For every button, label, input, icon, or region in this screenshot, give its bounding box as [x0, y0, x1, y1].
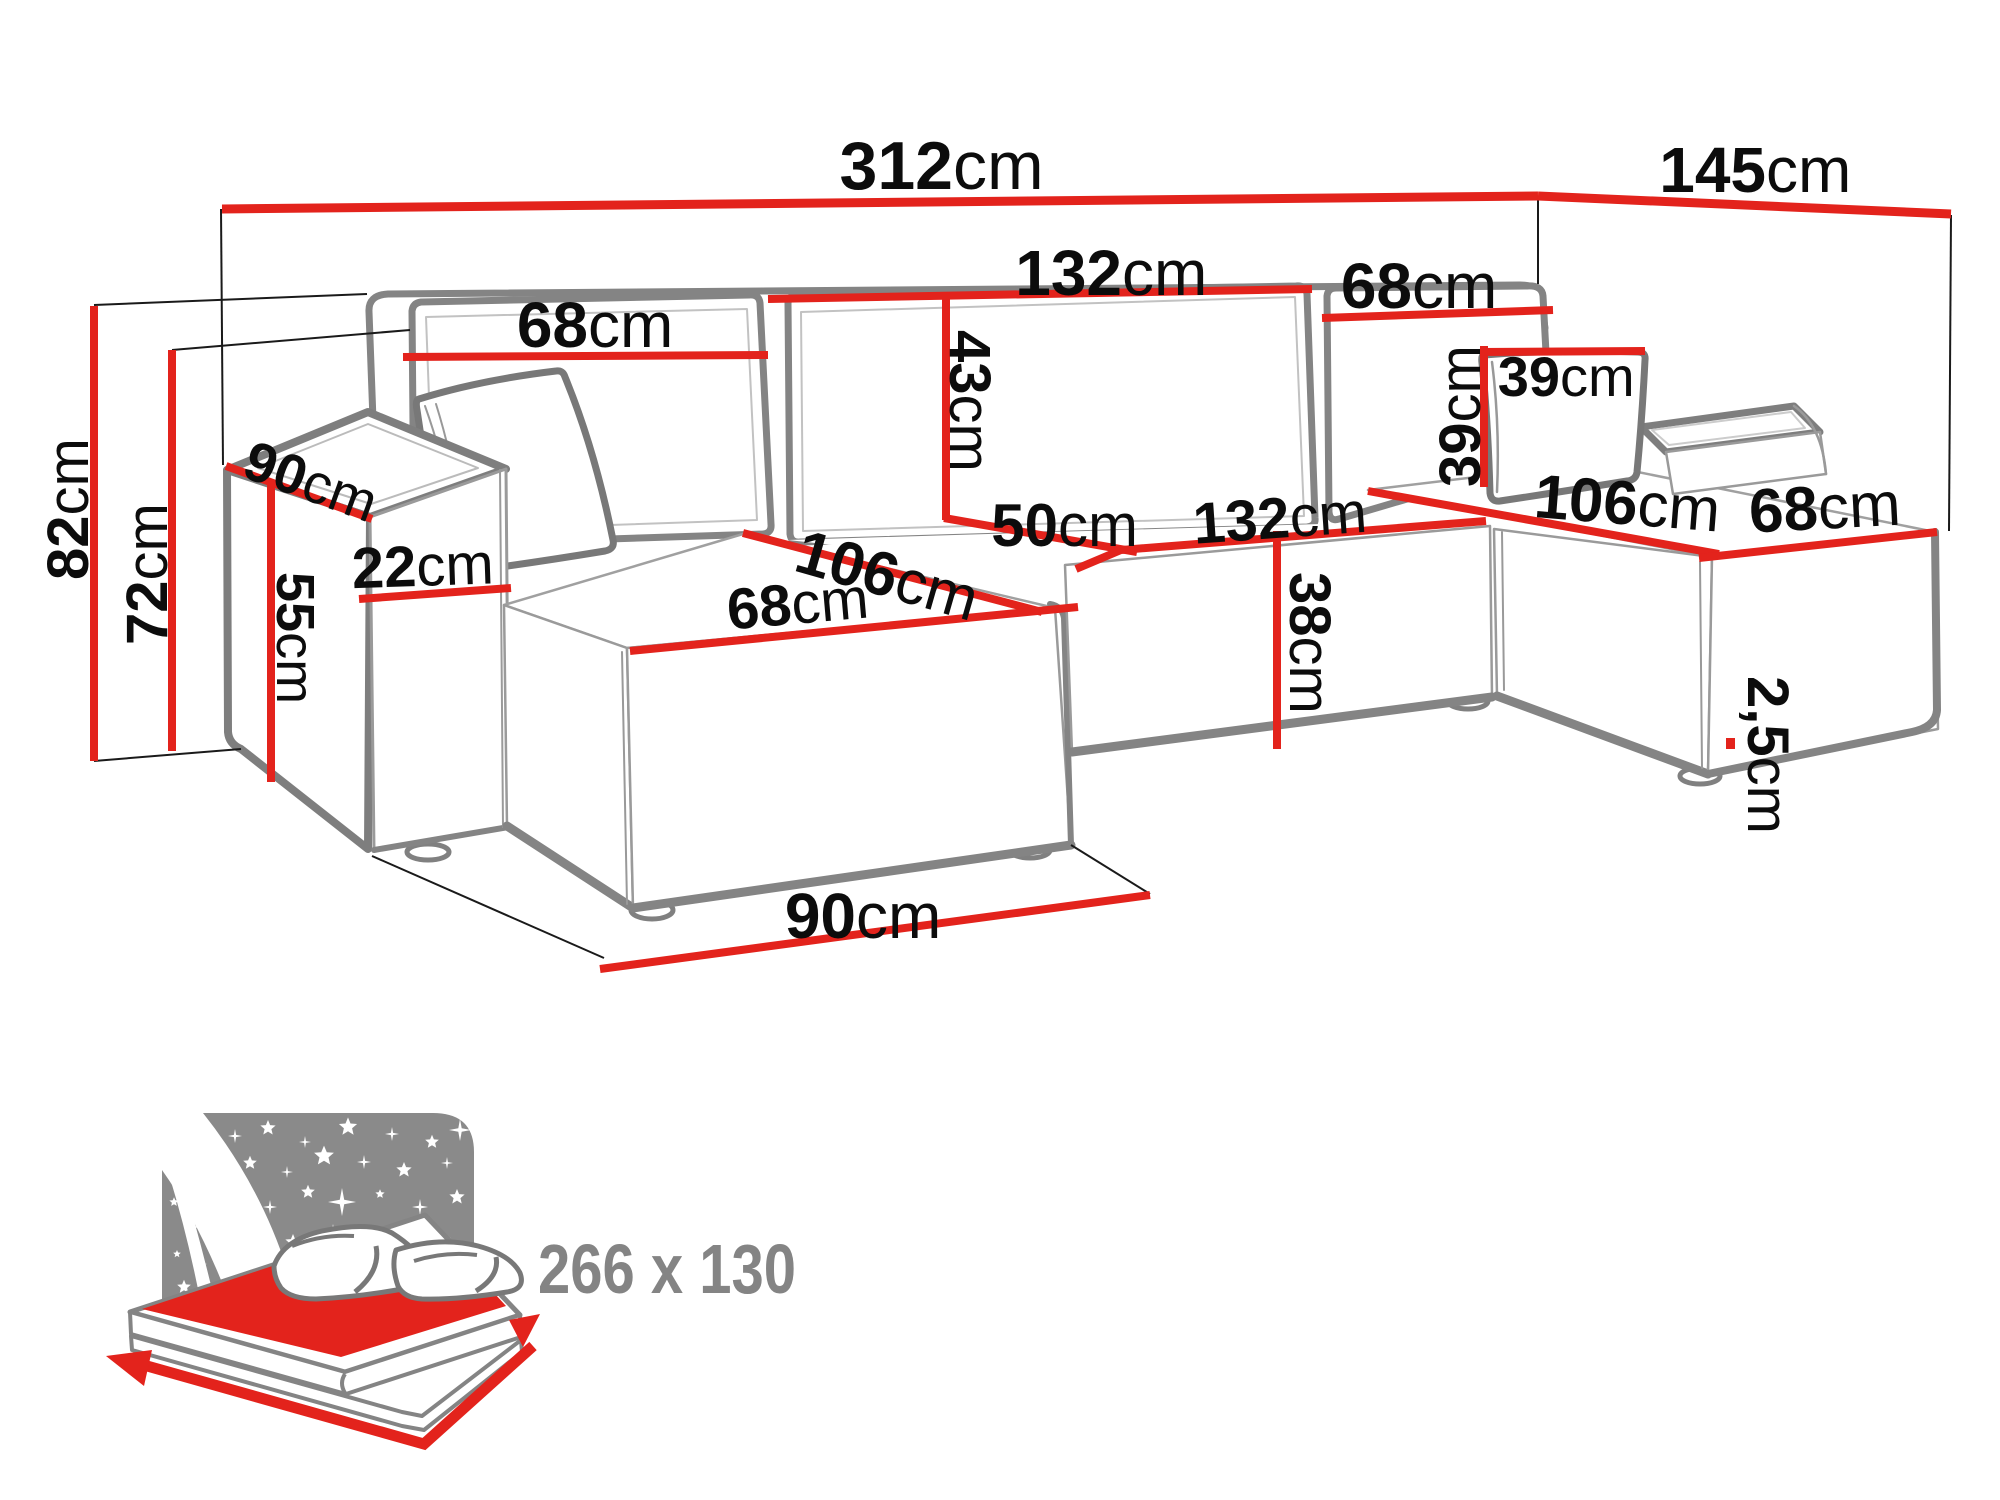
svg-text:312: 312	[840, 128, 953, 204]
svg-text:106cm: 106cm	[1532, 462, 1723, 545]
svg-text:cm: cm	[1816, 470, 1902, 543]
svg-text:38cm: 38cm	[1277, 572, 1342, 714]
svg-text:132: 132	[1015, 237, 1122, 309]
svg-text:cm: cm	[788, 565, 871, 636]
svg-text:82cm: 82cm	[36, 438, 101, 580]
svg-text:cm: cm	[1766, 134, 1851, 206]
svg-text:cm: cm	[1058, 492, 1138, 559]
svg-text:72cm: 72cm	[115, 503, 180, 645]
svg-text:39cm: 39cm	[1428, 345, 1493, 487]
svg-text:39: 39	[1498, 345, 1560, 408]
svg-text:cm: cm	[588, 289, 673, 361]
svg-text:145: 145	[1659, 134, 1766, 206]
svg-text:cm: cm	[953, 128, 1044, 204]
svg-text:43cm: 43cm	[937, 330, 1002, 472]
svg-text:cm: cm	[1560, 345, 1635, 408]
svg-text:266 x 130: 266 x 130	[538, 1230, 796, 1308]
svg-text:68: 68	[724, 572, 794, 642]
svg-text:cm: cm	[1122, 237, 1207, 309]
svg-text:68: 68	[1341, 250, 1412, 322]
svg-text:cm: cm	[1412, 250, 1497, 322]
svg-text:cm: cm	[856, 880, 941, 952]
svg-text:90: 90	[785, 880, 856, 952]
svg-text:cm: cm	[1287, 480, 1369, 550]
svg-text:68: 68	[1747, 474, 1819, 547]
svg-text:22: 22	[351, 534, 418, 601]
svg-text:68: 68	[517, 289, 588, 361]
svg-text:55cm: 55cm	[265, 572, 325, 704]
svg-text:2,5cm: 2,5cm	[1735, 676, 1800, 834]
svg-text:132: 132	[1191, 485, 1292, 557]
svg-text:cm: cm	[415, 531, 495, 599]
svg-text:50: 50	[991, 492, 1058, 559]
